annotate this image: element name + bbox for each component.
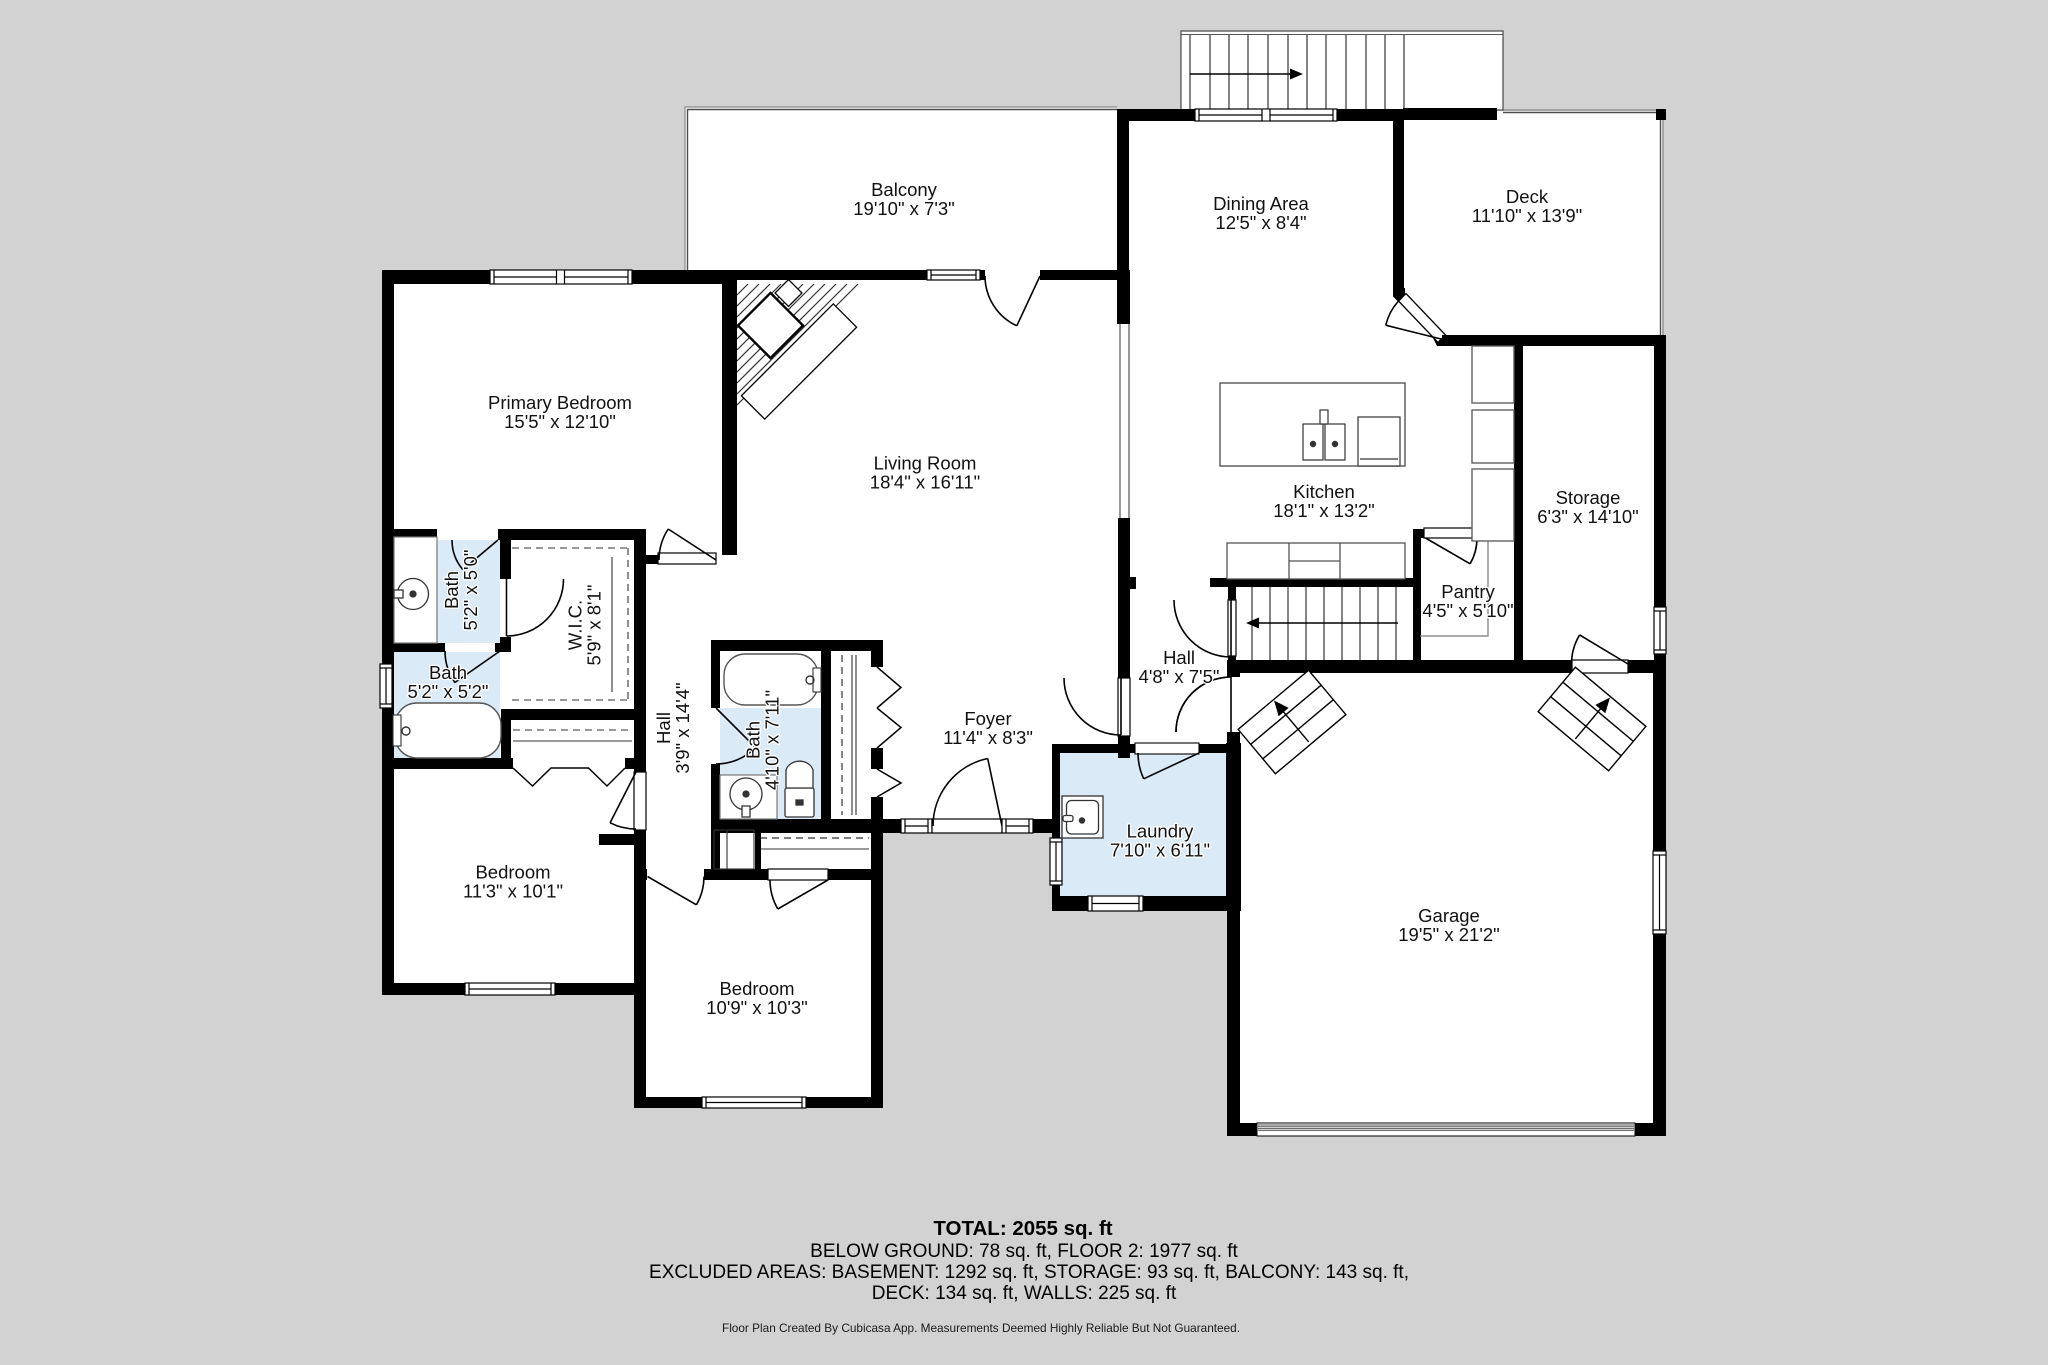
svg-text:19'5" x 21'2": 19'5" x 21'2" [1398,924,1499,945]
svg-text:11'10" x 13'9": 11'10" x 13'9" [1472,205,1582,226]
svg-text:10'9" x 10'3": 10'9" x 10'3" [706,997,807,1018]
svg-text:BELOW GROUND: 78 sq. ft, FLOOR: BELOW GROUND: 78 sq. ft, FLOOR 2: 1977 s… [810,1241,1238,1262]
svg-text:15'5" x 12'10": 15'5" x 12'10" [504,411,616,432]
svg-text:4'8" x 7'5": 4'8" x 7'5" [1139,666,1220,687]
svg-text:19'10" x 7'3": 19'10" x 7'3" [853,198,954,219]
svg-text:DECK: 134 sq. ft, WALLS: 225 s: DECK: 134 sq. ft, WALLS: 225 sq. ft [872,1283,1177,1304]
svg-text:Floor Plan Created By Cubicasa: Floor Plan Created By Cubicasa App. Meas… [722,1321,1240,1335]
svg-text:5'2" x 5'0": 5'2" x 5'0" [460,550,481,631]
svg-text:3'9" x 14'4": 3'9" x 14'4" [672,682,693,773]
svg-text:12'5" x 8'4": 12'5" x 8'4" [1215,212,1306,233]
svg-text:4'10" x 7'11": 4'10" x 7'11" [761,690,782,790]
svg-text:11'4" x 8'3": 11'4" x 8'3" [943,727,1033,748]
svg-text:6'3" x 14'10": 6'3" x 14'10" [1537,506,1638,527]
svg-text:EXCLUDED AREAS: BASEMENT: 1292: EXCLUDED AREAS: BASEMENT: 1292 sq. ft, S… [649,1262,1409,1283]
svg-text:5'2" x 5'2": 5'2" x 5'2" [408,681,489,702]
svg-text:4'5" x 5'10": 4'5" x 5'10" [1422,600,1513,621]
svg-text:TOTAL: 2055 sq. ft: TOTAL: 2055 sq. ft [933,1217,1112,1240]
svg-text:18'4" x 16'11": 18'4" x 16'11" [870,471,980,492]
svg-text:5'9" x 8'1": 5'9" x 8'1" [583,585,604,666]
svg-text:18'1" x 13'2": 18'1" x 13'2" [1273,500,1374,521]
svg-text:7'10" x 6'11": 7'10" x 6'11" [1110,839,1210,860]
svg-text:11'3" x 10'1": 11'3" x 10'1" [463,880,563,901]
